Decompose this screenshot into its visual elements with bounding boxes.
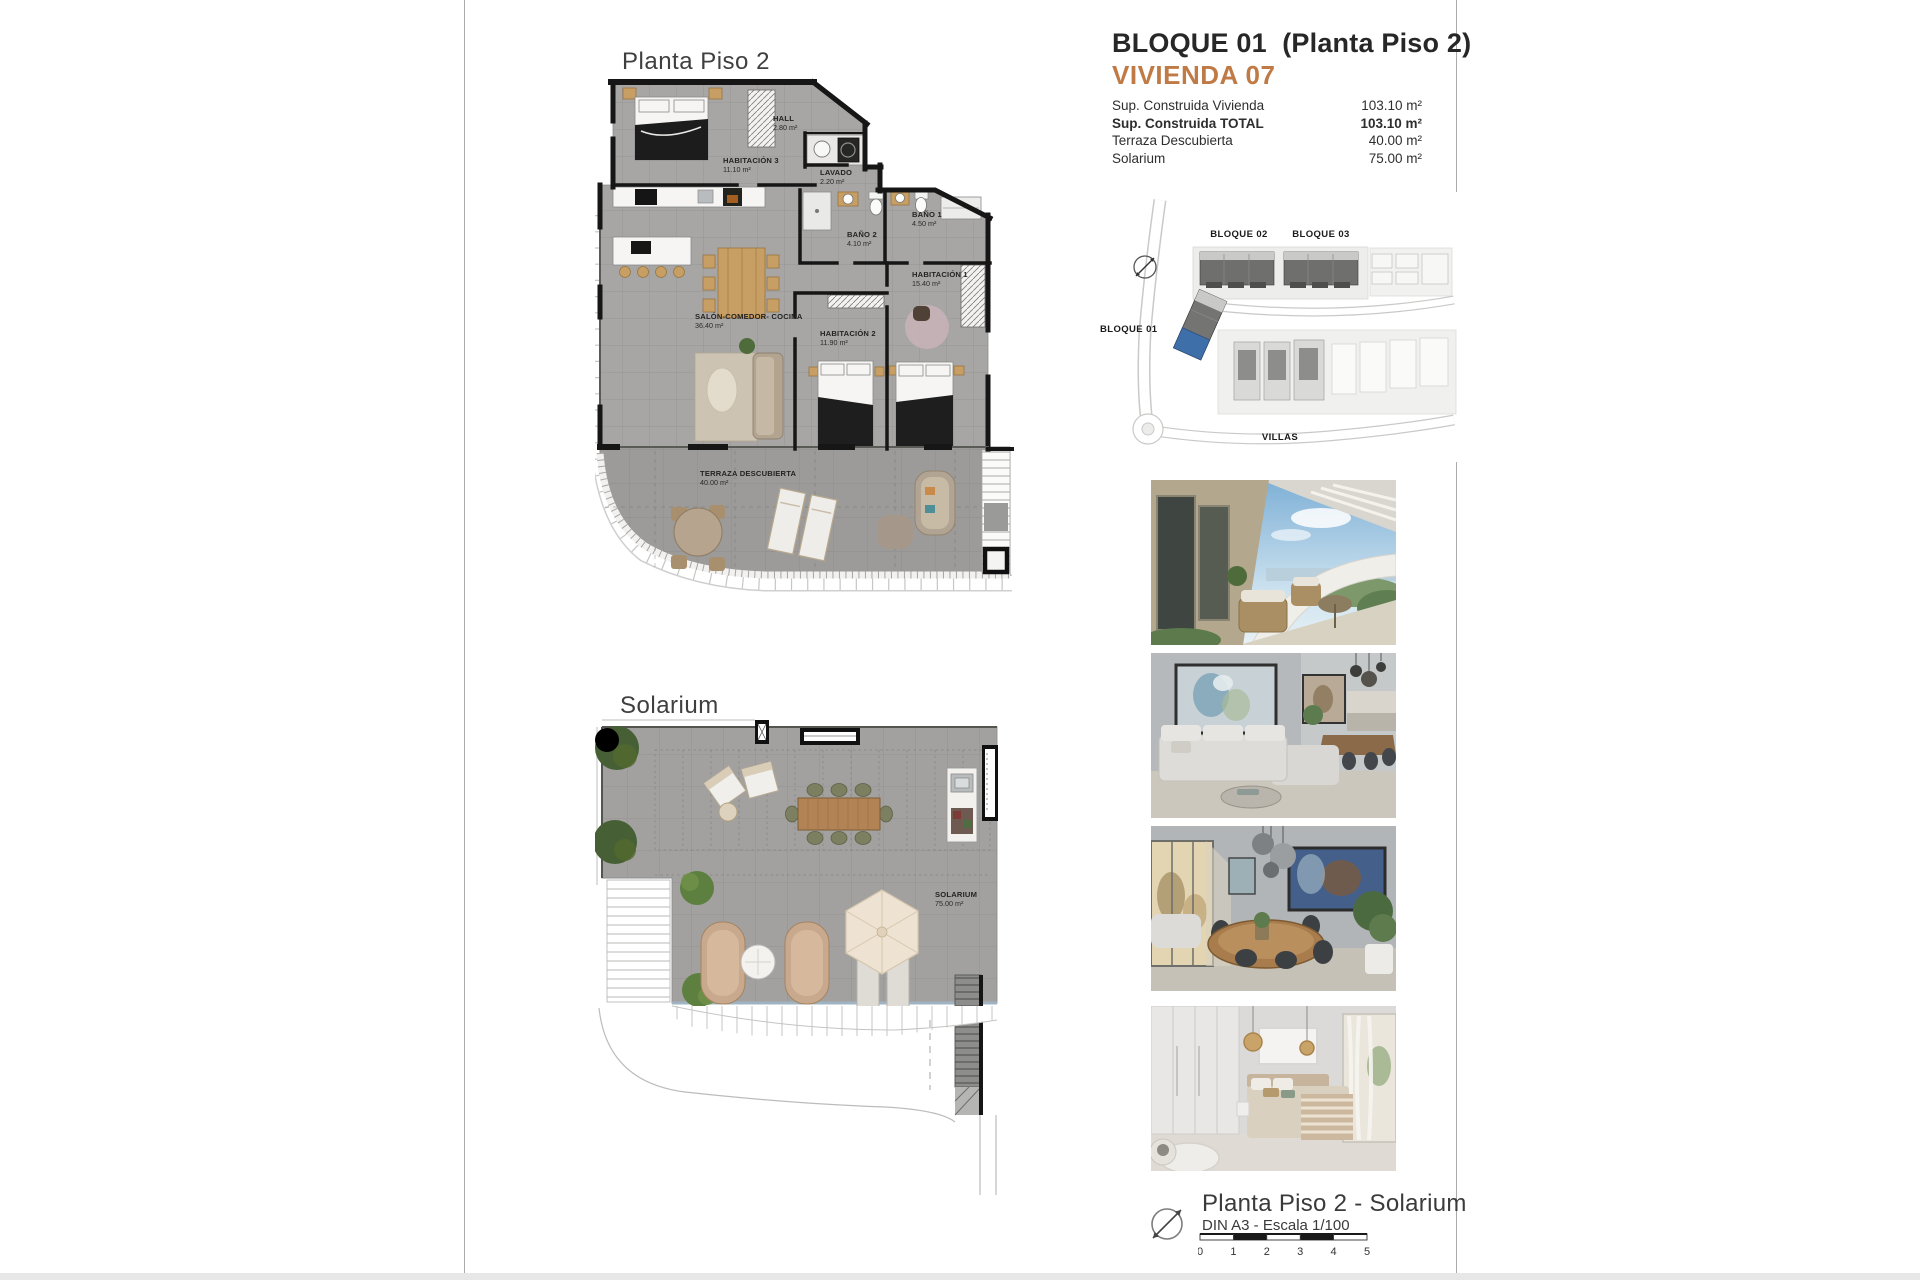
floorplan-piso2: HABITACIÓN 3 11.10 m² HALL 2.80 m² LAVAD… xyxy=(595,75,1015,630)
bloque03-building xyxy=(1284,252,1358,288)
svg-text:TERRAZA DESCUBIERTA: TERRAZA DESCUBIERTA xyxy=(700,469,797,478)
svg-text:HALL: HALL xyxy=(773,114,794,123)
habitacion1-chair xyxy=(913,306,930,321)
svg-text:HABITACIÓN 3: HABITACIÓN 3 xyxy=(723,156,779,165)
habitacion2-wardrobe xyxy=(828,295,884,308)
svg-text:4.10 m²: 4.10 m² xyxy=(847,239,872,248)
svg-text:1: 1 xyxy=(1230,1246,1236,1258)
surface-value: 75.00 m² xyxy=(1369,150,1422,168)
surface-table: Sup. Construida Vivienda 103.10 m² Sup. … xyxy=(1112,97,1422,167)
surface-label: Sup. Construida TOTAL xyxy=(1112,115,1264,133)
svg-text:SOLARIUM: SOLARIUM xyxy=(935,890,977,899)
surface-label: Sup. Construida Vivienda xyxy=(1112,97,1264,115)
svg-text:11.10 m²: 11.10 m² xyxy=(723,165,751,174)
villas-outline-right xyxy=(1332,338,1448,394)
photo-living-room xyxy=(1151,653,1396,818)
site-plan: BLOQUE 02 BLOQUE 03 BLOQUE 01 VILLAS xyxy=(1098,192,1458,462)
surface-label: Solarium xyxy=(1112,150,1165,168)
photo-dining-area xyxy=(1151,826,1396,991)
photo-bedroom xyxy=(1151,1006,1396,1171)
solarium-small-table xyxy=(719,803,737,821)
svg-text:SALÓN-COMEDOR- COCINA: SALÓN-COMEDOR- COCINA xyxy=(695,312,803,321)
svg-text:3: 3 xyxy=(1297,1246,1303,1258)
vivienda-title: VIVIENDA 07 xyxy=(1112,60,1275,91)
svg-text:HABITACIÓN 1: HABITACIÓN 1 xyxy=(912,270,968,279)
surface-value: 103.10 m² xyxy=(1360,115,1422,133)
villas-buildings xyxy=(1234,340,1324,400)
surface-label: Terraza Descubierta xyxy=(1112,132,1233,150)
bloque01-label: BLOQUE 01 xyxy=(1100,324,1158,335)
surface-row: Solarium 75.00 m² xyxy=(1112,150,1422,168)
bed-habitacion3 xyxy=(623,88,722,160)
bloque02-building xyxy=(1200,252,1274,288)
svg-text:LAVADO: LAVADO xyxy=(820,168,852,177)
page-bottom-strip xyxy=(0,1273,1920,1280)
svg-text:2.80 m²: 2.80 m² xyxy=(773,123,798,132)
dining-table xyxy=(703,248,779,318)
svg-text:75.00 m²: 75.00 m² xyxy=(935,899,964,908)
svg-text:BAÑO 2: BAÑO 2 xyxy=(847,230,877,239)
surface-row: Sup. Construida Vivienda 103.10 m² xyxy=(1112,97,1422,115)
living-rug-sofa xyxy=(695,338,783,441)
block-title: BLOQUE 01 (Planta Piso 2) xyxy=(1112,28,1471,59)
surface-value: 40.00 m² xyxy=(1369,132,1422,150)
surface-row: Terraza Descubierta 40.00 m² xyxy=(1112,132,1422,150)
outdoor-kitchen xyxy=(947,768,977,842)
footer-title: Planta Piso 2 - Solarium xyxy=(1202,1190,1467,1218)
hall-wardrobe xyxy=(748,90,775,147)
brochure-page: Planta Piso 2 xyxy=(0,0,1920,1280)
svg-text:2: 2 xyxy=(1264,1246,1270,1258)
svg-text:HABITACIÓN 2: HABITACIÓN 2 xyxy=(820,329,876,338)
terrace-side-table xyxy=(877,515,913,549)
svg-text:15.40 m²: 15.40 m² xyxy=(912,279,941,288)
svg-text:11.90 m²: 11.90 m² xyxy=(820,338,848,347)
bed-habitacion2 xyxy=(809,361,884,446)
surface-value: 103.10 m² xyxy=(1361,97,1422,115)
svg-text:2.20 m²: 2.20 m² xyxy=(820,177,845,186)
bed-habitacion1 xyxy=(889,362,964,446)
svg-text:BAÑO 1: BAÑO 1 xyxy=(912,210,942,219)
svg-text:36.40 m²: 36.40 m² xyxy=(695,321,724,330)
solarium-stairs-left xyxy=(607,880,670,1002)
footer-compass-icon xyxy=(1144,1198,1190,1250)
solarium-walkway xyxy=(599,1006,997,1195)
svg-text:4: 4 xyxy=(1331,1246,1337,1258)
villas-label: VILLAS xyxy=(1262,432,1298,443)
surface-row-total: Sup. Construida TOTAL 103.10 m² xyxy=(1112,115,1422,133)
bloque02-label: BLOQUE 02 xyxy=(1210,229,1267,240)
terrace-stairs xyxy=(982,450,1010,572)
svg-text:0: 0 xyxy=(1198,1246,1203,1258)
terrace-sofa xyxy=(915,471,955,535)
floorplan-solarium: SOLARIUM 75.00 m² xyxy=(595,690,1015,1200)
plan-piso2-title: Planta Piso 2 xyxy=(622,48,770,76)
lavado-fixtures xyxy=(807,135,863,165)
scale-bar: 0 1 2 3 4 5 xyxy=(1198,1231,1378,1259)
photo-terrace-balcony xyxy=(1151,480,1396,645)
solarium-stairs-right xyxy=(955,975,981,1115)
kitchen-counter xyxy=(613,187,765,207)
svg-text:4.50 m²: 4.50 m² xyxy=(912,219,937,228)
svg-text:5: 5 xyxy=(1364,1246,1370,1258)
svg-text:40.00 m²: 40.00 m² xyxy=(700,478,729,487)
bloque03-label: BLOQUE 03 xyxy=(1292,229,1349,240)
